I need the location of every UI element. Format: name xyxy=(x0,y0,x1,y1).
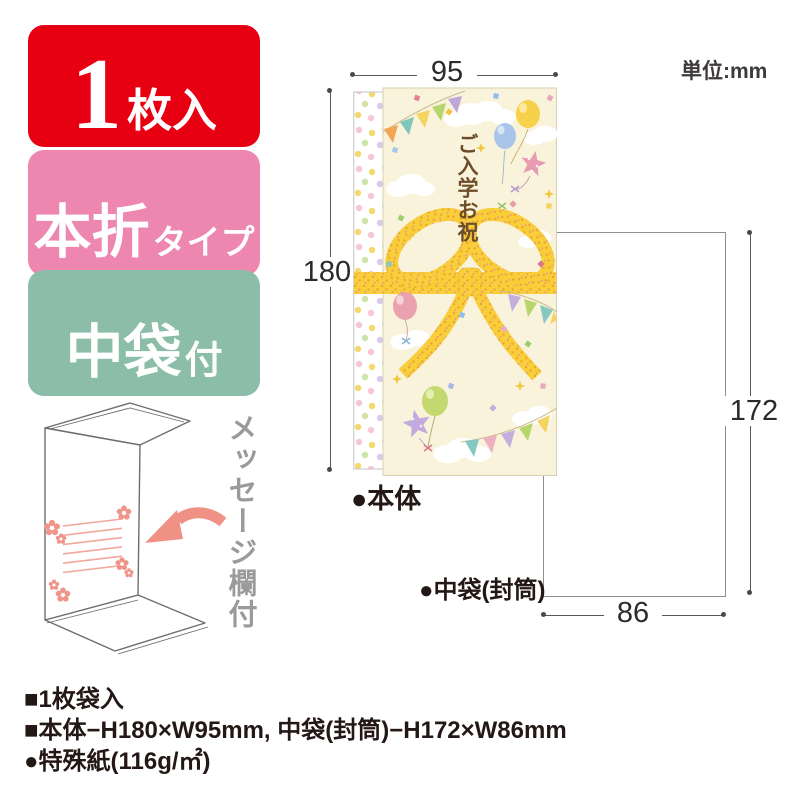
dim-dot xyxy=(747,590,752,595)
dim-dot xyxy=(553,72,558,77)
foldout-envelope-art xyxy=(30,392,235,677)
badge-fold-type: 本折 タイプ xyxy=(28,150,260,276)
body-label: ●本体 xyxy=(351,477,421,516)
dim-dot xyxy=(721,612,726,617)
dim-dot xyxy=(327,467,332,472)
dim-dot xyxy=(327,88,332,93)
spec-line-sizes: ■本体−H180×W95mm, 中袋(封筒)−H172×W86mm xyxy=(24,715,567,746)
foldout-outline xyxy=(45,403,205,651)
dim-value-body-width: 95 xyxy=(417,57,477,87)
dim-value-inner-width: 86 xyxy=(604,598,662,628)
inner-envelope-outline xyxy=(543,232,726,597)
spec-line-paper: ●特殊紙(116g/㎡) xyxy=(24,746,567,777)
dim-dot xyxy=(541,612,546,617)
badge-fold-type-sub: タイプ xyxy=(153,226,255,260)
badge-sheet-count-number: 1 xyxy=(71,55,122,135)
spec-list: ■1枚袋入 ■本体−H180×W95mm, 中袋(封筒)−H172×W86mm … xyxy=(24,684,567,777)
envelope-title: ご入学お祝 xyxy=(451,133,481,243)
message-arrow-icon xyxy=(145,510,223,543)
badge-inner-bag-main: 中袋 xyxy=(65,325,181,380)
inner-envelope-label: ●中袋(封筒) xyxy=(419,570,545,605)
badge-inner-bag-sub: 付 xyxy=(185,342,223,380)
dim-value-body-height: 180 xyxy=(296,257,358,287)
dim-value-inner-height: 172 xyxy=(723,396,785,426)
unit-note: 単位:mm xyxy=(681,55,767,85)
dim-dot xyxy=(350,72,355,77)
badge-fold-type-main: 本折 xyxy=(33,205,149,260)
dim-dot xyxy=(747,230,752,235)
badge-inner-bag: 中袋 付 xyxy=(28,270,260,396)
badge-sheet-count-suffix: 枚入 xyxy=(127,90,217,133)
product-spec-sheet: 1 枚入 本折 タイプ 中袋 付 単位:mm 95 180 172 86 xyxy=(0,0,800,800)
badge-sheet-count: 1 枚入 xyxy=(28,25,260,147)
spec-line-count: ■1枚袋入 xyxy=(24,684,567,715)
message-note: メッセージ欄付 xyxy=(219,413,261,630)
